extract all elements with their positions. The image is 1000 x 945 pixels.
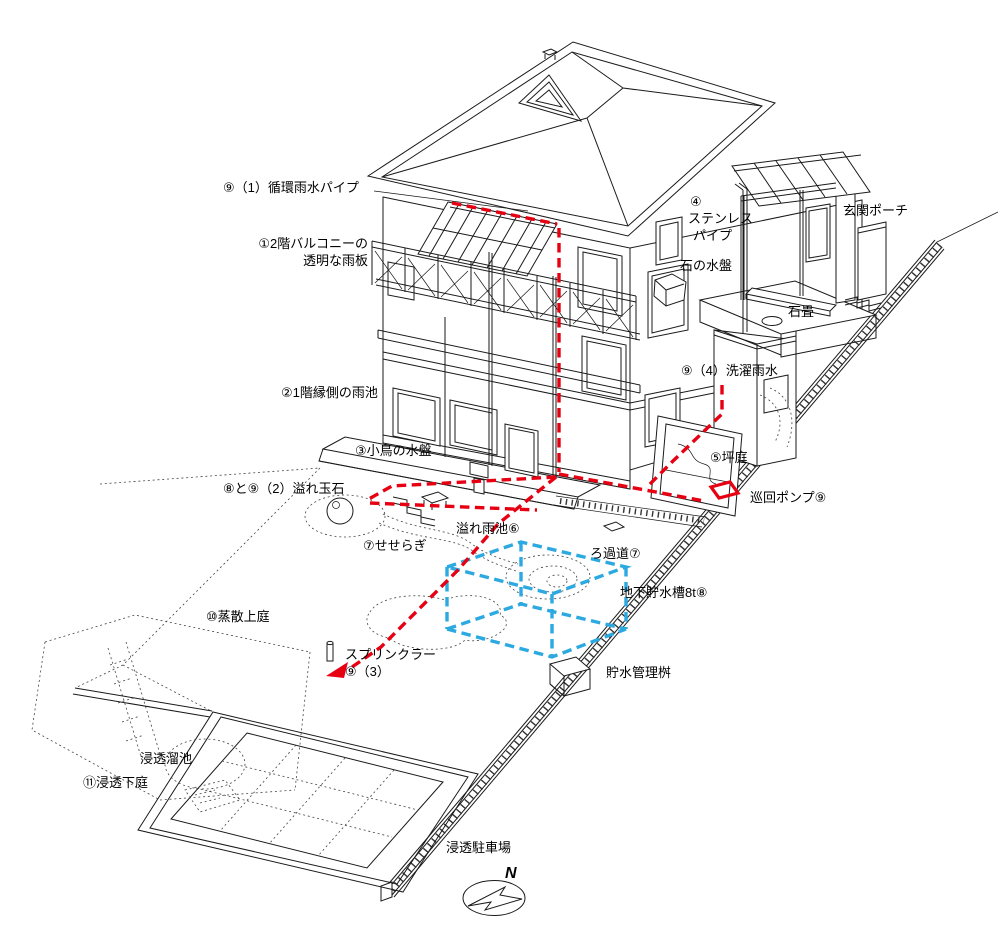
overflow-stone-bed: [305, 495, 385, 537]
diagram-artwork: [0, 0, 1000, 945]
garden-features: [305, 495, 624, 661]
label-underground-tank: 地下貯水槽8t⑧: [620, 585, 708, 602]
filter-path-marker: [604, 522, 624, 531]
label-tsubo-garden: ⑤坪庭: [710, 450, 748, 467]
overflow-pond-swirl: [506, 555, 590, 599]
label-bird-basin: ③小鳥の水盤: [355, 443, 432, 460]
entrance-door: [505, 424, 538, 477]
label-sprinkler: スプリンクラー⑨（3）: [345, 647, 436, 681]
label-seseragi: ⑦せせらぎ: [363, 538, 427, 555]
evaporation-garden-bed: [367, 596, 507, 650]
label-infiltration-parking: 浸透駐車場: [446, 840, 511, 857]
compass: [463, 881, 525, 916]
label-infiltration-garden: ⑪浸透下庭: [83, 775, 148, 792]
label-overflow-stones: ⑧と⑨（2）溢れ玉石: [223, 481, 345, 498]
label-circulation-pipe: ⑨（1）循環雨水パイプ: [223, 180, 359, 197]
infiltration-parking-lot: [138, 712, 478, 892]
label-balcony-rain-board: ①2階バルコニーの透明な雨板: [243, 236, 368, 270]
porch-glass: [806, 204, 830, 262]
oval-stone: [762, 317, 782, 326]
label-storage-management-box: 貯水管理桝: [606, 665, 671, 682]
label-entrance-porch: 玄関ポーチ: [843, 203, 908, 220]
label-engawa-pond: ②1階縁側の雨池: [281, 385, 378, 402]
label-stainless-pipe: ④ステンレスパイプ: [690, 194, 753, 245]
label-stone-pavement: 石畳: [788, 304, 814, 321]
overflow-stone: [327, 498, 353, 524]
lower-garden: [32, 615, 310, 812]
garden-boundaries: [75, 468, 320, 712]
pipe-stone-return: [370, 503, 537, 510]
label-laundry-rainwater: ⑨（4）洗濯雨水: [681, 363, 778, 380]
freestanding-wall: [858, 222, 886, 300]
label-evaporation-garden: ⑩蒸散上庭: [206, 609, 270, 626]
rainwater-system-diagram: ⑨（1）循環雨水パイプ ①2階バルコニーの透明な雨板 ②1階縁側の雨池 ③小鳥の…: [0, 0, 1000, 945]
label-stone-basin: 石の水盤: [680, 258, 732, 275]
label-filter-path: ろ過道⑦: [590, 546, 641, 563]
label-compass-north: N: [505, 865, 517, 883]
label-circulation-pump: 巡回ポンプ⑨: [750, 490, 826, 507]
sprinkler-head: [327, 641, 333, 661]
label-infiltration-pond: 浸透溜池: [140, 751, 192, 768]
label-overflow-pond: 溢れ雨池⑥: [456, 521, 520, 538]
